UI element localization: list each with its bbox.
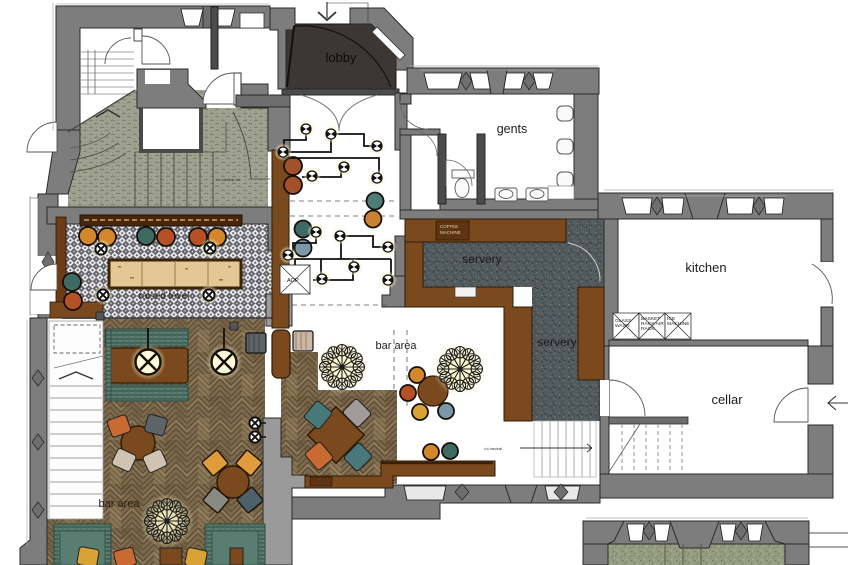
svg-text:MACHINE: MACHINE	[440, 230, 461, 235]
svg-text:kitchen: kitchen	[685, 260, 726, 275]
svg-text:bar area: bar area	[99, 498, 141, 510]
svg-text:COFFEE: COFFEE	[440, 224, 458, 229]
svg-text:MACHINE: MACHINE	[667, 321, 690, 327]
svg-text:gents: gents	[497, 122, 528, 136]
svg-text:raised level: raised level	[139, 291, 190, 302]
svg-text:lobby: lobby	[325, 50, 357, 65]
svg-text:RACK: RACK	[641, 326, 655, 332]
svg-text:servery: servery	[462, 252, 501, 266]
svg-text:cellar: cellar	[711, 392, 743, 407]
svg-text:bar area: bar area	[376, 340, 418, 352]
svg-text:WASH: WASH	[615, 323, 630, 329]
svg-text:AOP: AOP	[287, 278, 299, 284]
svg-text:c/o handrail: c/o handrail	[484, 447, 502, 451]
svg-text:servery: servery	[537, 335, 576, 349]
svg-text:u/s handrail o/a: u/s handrail o/a	[216, 178, 240, 182]
